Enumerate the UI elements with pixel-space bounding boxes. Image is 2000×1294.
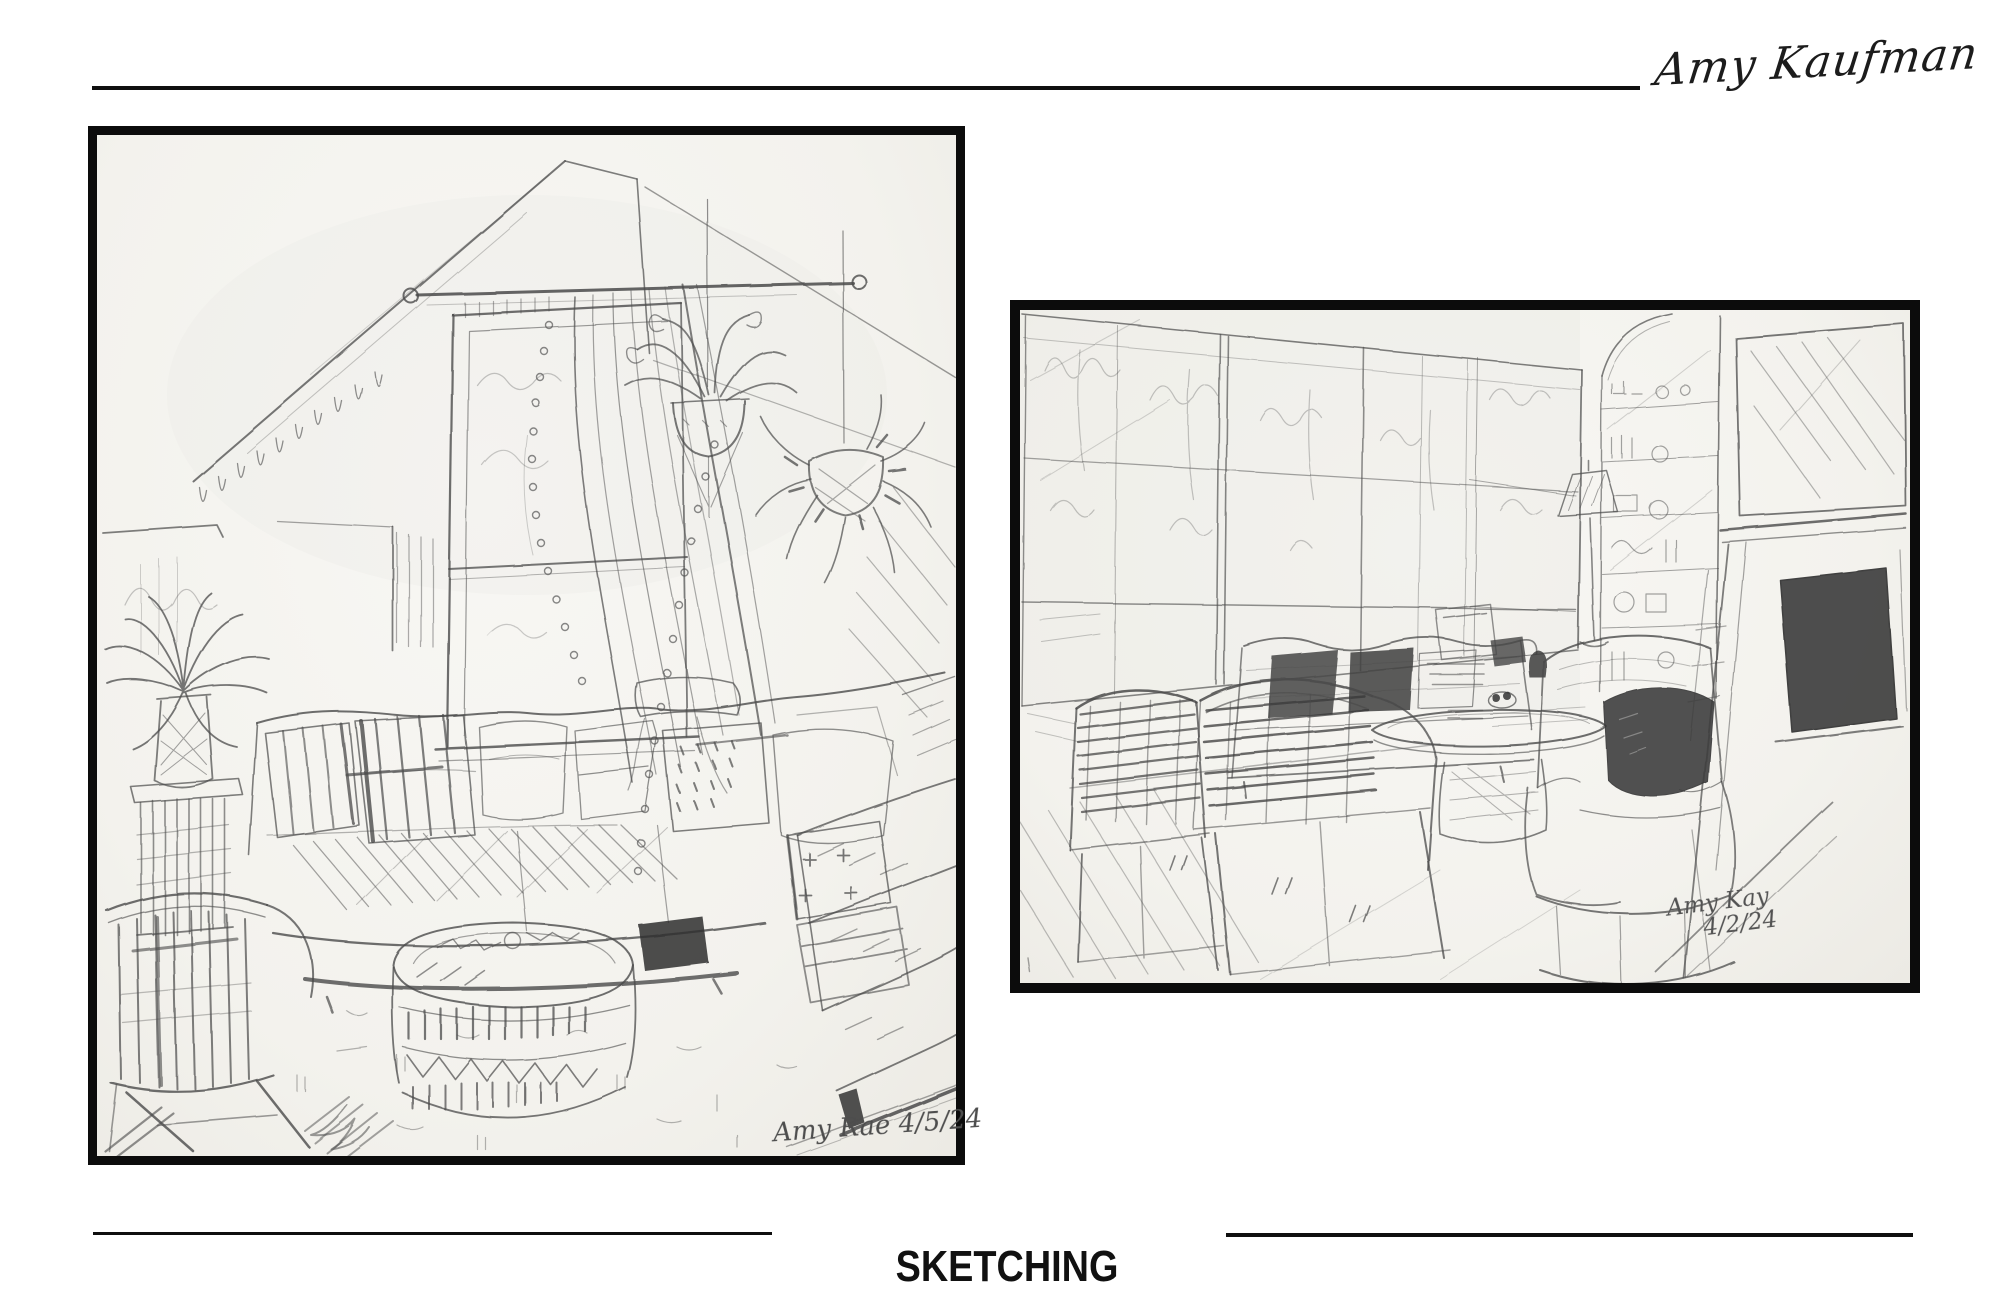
header-rule [92, 86, 1640, 90]
sketch-frame-living-room: Amy Kay 4/2/24 [1010, 300, 1920, 993]
sketch-date: 4/5/24 [898, 1104, 984, 1140]
portfolio-page: Amy Kaufman [0, 0, 2000, 1294]
footer-right-rule [1226, 1233, 1913, 1237]
footer-left-rule [93, 1232, 772, 1235]
attic-living-room-sketch-drawing [97, 135, 956, 1156]
artist-signature: Amy Kaufman [1652, 31, 1928, 97]
sketch-frame-attic-room: Amy Rae 4/5/24 [88, 126, 965, 1165]
page-title: SKETCHING [872, 1245, 1142, 1289]
living-room-fireplace-sketch-drawing [1020, 310, 1910, 983]
